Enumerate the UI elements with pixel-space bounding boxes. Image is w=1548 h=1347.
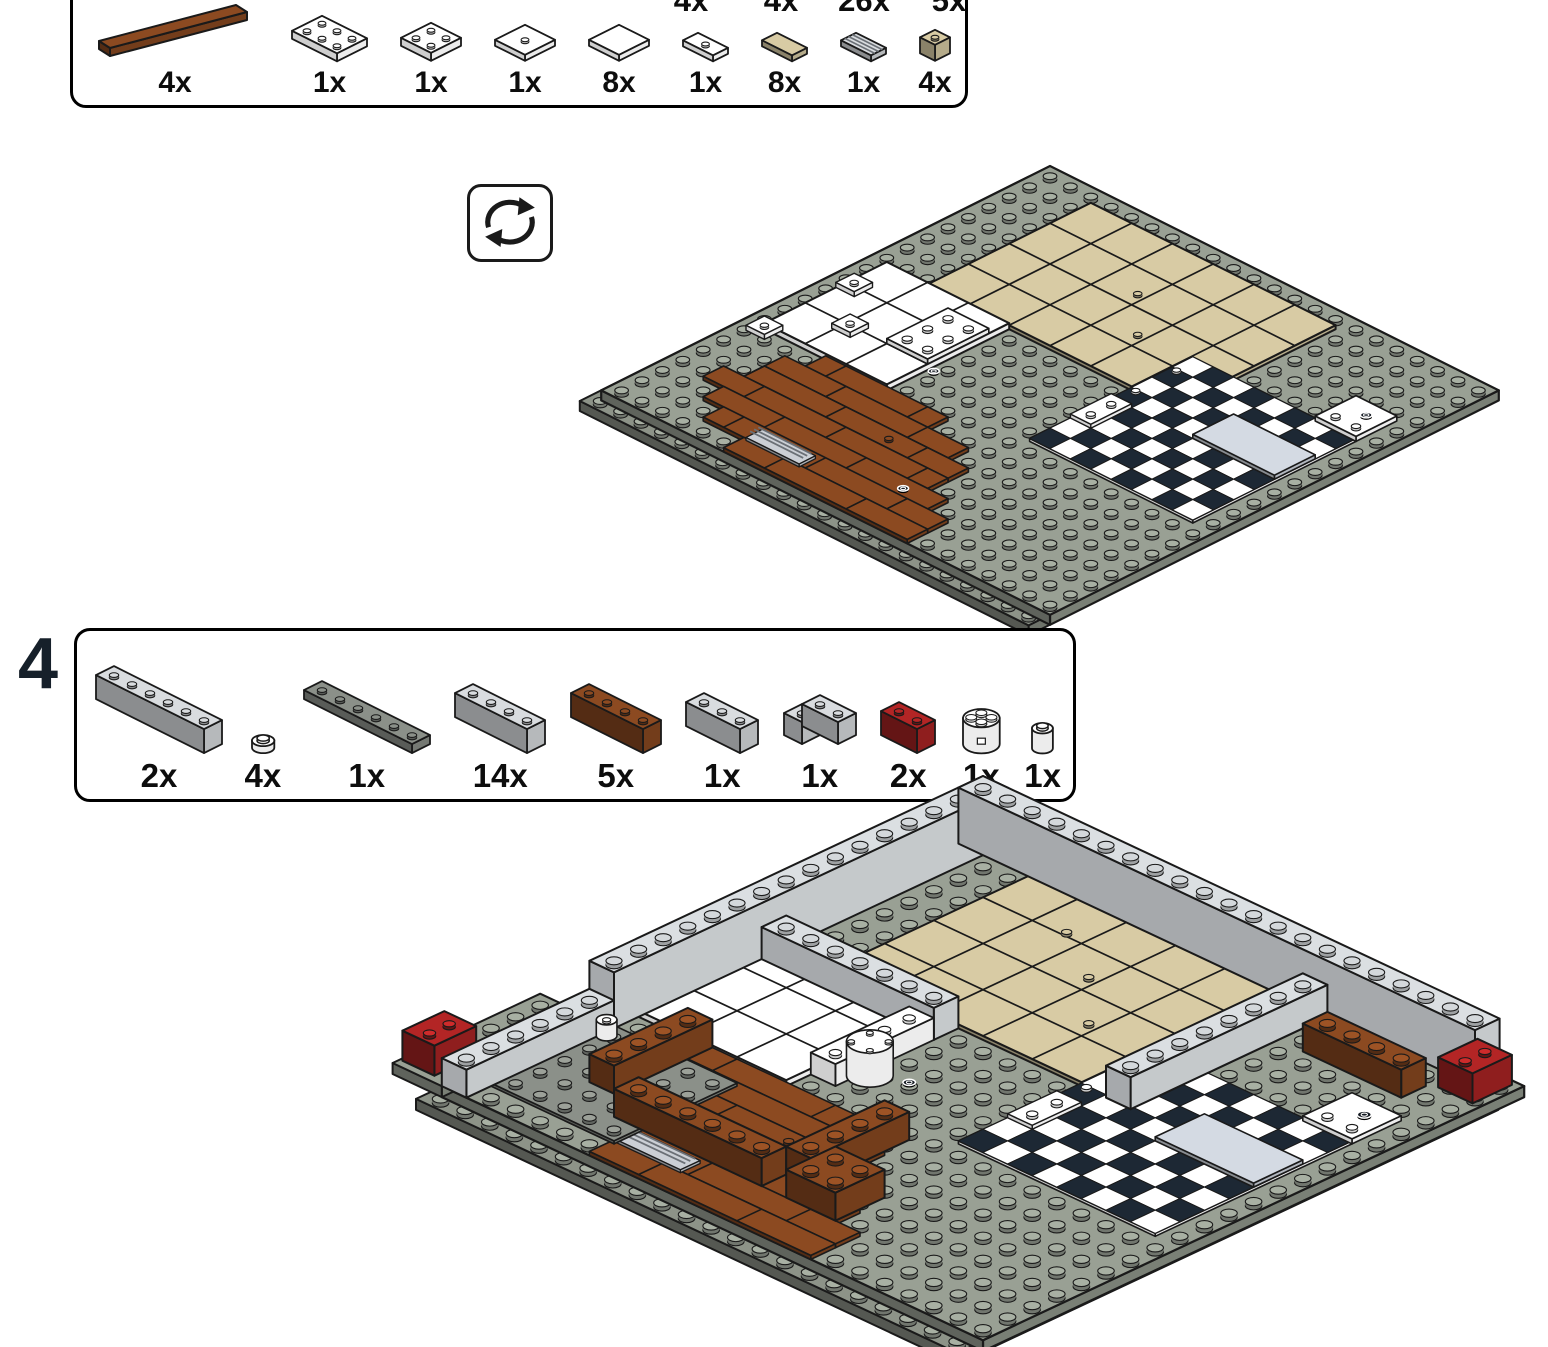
- parts-list-step4: 2x4x1x14x5x1x1x2x1x1x: [93, 654, 1061, 793]
- part-item-plate-2x3: 1x: [289, 5, 370, 99]
- part-item-tile-1x2: 8x: [759, 22, 810, 99]
- part-quantity-label: 1x: [313, 67, 346, 99]
- part-item-brick-1x4: 14x: [452, 672, 548, 793]
- part-quantity-label: 14x: [473, 759, 528, 793]
- part-quantity-label: 1x: [704, 759, 741, 793]
- brick-1x3-icon: [683, 681, 761, 757]
- instruction-page: 4x4x26x5x 4x1x1x1x8x1x8x1x4x 4 2x4x1x14x…: [0, 0, 1548, 1347]
- part-quantity-label: 1x: [1024, 759, 1061, 793]
- brick-1x2-icon: [878, 690, 938, 757]
- part-quantity-label: 1x: [801, 759, 838, 793]
- part-item-plate-1x6: 1x: [301, 669, 433, 793]
- part-quantity-label: 8x: [768, 67, 801, 99]
- part-quantity-label: 2x: [890, 759, 927, 793]
- part-quantity-label: 1x: [847, 67, 880, 99]
- part-item-brick-1x6: 2x: [93, 654, 225, 793]
- part-quantity-label: 8x: [602, 67, 635, 99]
- part-item-brick-1x3: 1x: [683, 681, 761, 793]
- part-item-round-2x2: 1x: [958, 703, 1005, 793]
- tile-2x2-icon: [586, 14, 652, 65]
- rotate-arrows-icon: [474, 190, 546, 256]
- part-item-jumper-1x2: 1x: [680, 22, 731, 99]
- plate-2x2-icon: [398, 12, 464, 65]
- part-item-brick-1x1: 4x: [917, 19, 953, 99]
- part-item-corner-2x2: 1x: [781, 683, 859, 793]
- part-quantity-label: 5x: [597, 759, 634, 793]
- part-quantity-label: 1x: [689, 67, 722, 99]
- part-quantity-label: 1x: [963, 759, 1000, 793]
- part-quantity-label: 4x: [245, 759, 282, 793]
- part-item-grille-1x2: 1x: [838, 22, 889, 99]
- brick-1x4-brown-icon: [568, 672, 664, 757]
- step-number: 4: [18, 628, 58, 700]
- brick-1x4-icon: [452, 672, 548, 757]
- part-item-round-plate-1x1: 4x: [245, 729, 282, 793]
- part-quantity-label: 1x: [508, 67, 541, 99]
- rotate-view-icon: [467, 184, 553, 262]
- part-quantity-label: 4x: [918, 67, 951, 99]
- plate-2x3-icon: [289, 5, 370, 65]
- grille-1x2-icon: [838, 22, 889, 65]
- part-item-round-1x1: 1x: [1024, 717, 1061, 793]
- corner-2x2-icon: [781, 683, 859, 757]
- part-item-plate-2x2-stud: 1x: [492, 14, 558, 99]
- assembly-illustration-step4-result: [416, 818, 1548, 1347]
- part-item-tile-2x2: 8x: [586, 14, 652, 99]
- round-plate-1x1-icon: [247, 729, 279, 757]
- plate-2x2-stud-icon: [492, 14, 558, 65]
- round-2x2-icon: [958, 703, 1005, 757]
- part-item-brick-1x2: 2x: [878, 690, 938, 793]
- part-quantity-label: 1x: [414, 67, 447, 99]
- tile-1x6-diag-icon: [89, 0, 261, 65]
- part-item-plate-2x2: 1x: [398, 12, 464, 99]
- parts-inventory-step4: 2x4x1x14x5x1x1x2x1x1x: [74, 628, 1076, 802]
- part-item-brick-1x4-brown: 5x: [568, 672, 664, 793]
- part-quantity-label: 1x: [348, 759, 385, 793]
- assembly-illustration-step3-result: [578, 156, 1548, 622]
- parts-list-previous-step: 4x1x1x1x8x1x8x1x4x: [89, 0, 953, 99]
- part-quantity-label: 2x: [141, 759, 178, 793]
- jumper-1x2-icon: [680, 22, 731, 65]
- round-1x1-icon: [1027, 717, 1058, 757]
- brick-1x1-icon: [917, 19, 953, 65]
- part-item-tile-1x6-diag: 4x: [89, 0, 261, 99]
- brick-1x6-icon: [93, 654, 225, 757]
- parts-inventory-previous-step: 4x4x26x5x 4x1x1x1x8x1x8x1x4x: [70, 0, 968, 108]
- part-quantity-label: 4x: [158, 67, 191, 99]
- tile-1x2-icon: [759, 22, 810, 65]
- plate-1x6-icon: [301, 669, 433, 757]
